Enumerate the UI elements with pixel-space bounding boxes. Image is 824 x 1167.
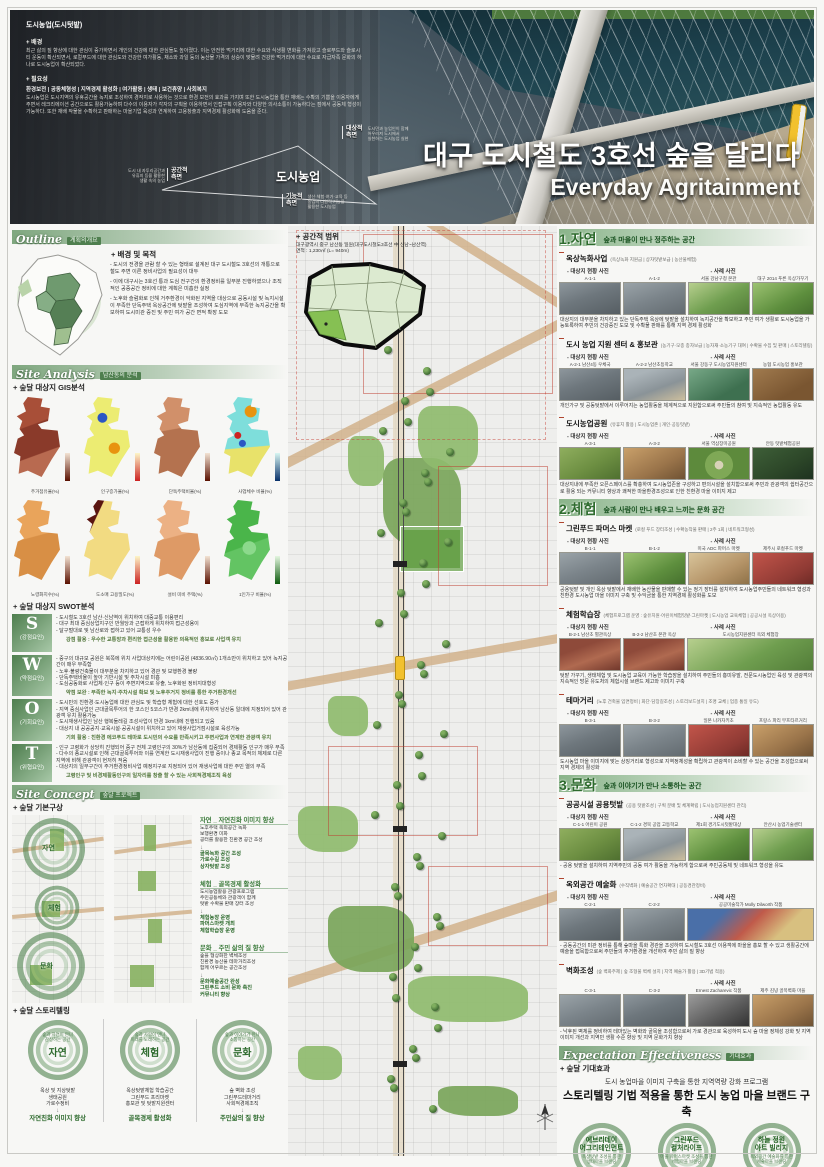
tree-icon xyxy=(402,508,410,516)
tree-icon xyxy=(371,811,379,819)
goal-item: - 노후화 슬럼화로 인해 거주환경이 악화된 지역을 대상으로 공동시설 및 … xyxy=(110,296,286,316)
need-keywords: 환경보전 | 공동체형성 | 지역경제 활성화 | 여가활동 | 생태 | 보건… xyxy=(26,85,362,93)
annotation-rect xyxy=(438,466,548,586)
swot-strength: S(강점요인) - 도시철도 3호선 남산·신남역이 위치하여 대중교통 이용편… xyxy=(12,614,288,652)
storytelling-row: 숲과 자연이 만나 감상하는 공간자연 옥상 및 지상텃밭 생태공원 가로수정비… xyxy=(12,1019,288,1122)
site-photo xyxy=(559,828,621,861)
case-photo-label: - 사례 사진 xyxy=(687,267,815,275)
tree-icon xyxy=(377,529,385,537)
tree-icon xyxy=(431,1003,439,1011)
outline-body: + 배경 및 목적 - 도시의 전경을 관람 할 수 있는 형태로 설계된 대구… xyxy=(12,247,288,363)
tree-icon xyxy=(391,883,399,891)
case-photo xyxy=(688,828,750,861)
concept-map-strip-1: 자연 체험 문화 xyxy=(12,815,104,1003)
concept-item-nature: 자연 _ 자연친화 이미지 향상 노후주택 옥외공간 녹화 보행환경 미화 공터… xyxy=(200,815,288,870)
expectation-title: + 숲달 기대효과 xyxy=(560,1063,814,1074)
tree-icon xyxy=(395,691,403,699)
case-photo xyxy=(687,638,814,671)
site-concept-section-header: Site Concept숲달 프로젝트 xyxy=(12,785,288,799)
tree-icon xyxy=(426,388,434,396)
tree-icon xyxy=(438,832,446,840)
concept-item-experience: 체험 _ 골목경제 활성화 도시농업활용 관광프로그램 주민공동체와 관광객이 … xyxy=(200,879,288,934)
poster: 도시농업(도시텃밭) + 배경 최근 삶의 질 향상에 대한 관심이 증가하면서… xyxy=(0,0,824,1167)
outline-section-header: Outline계획의개요 xyxy=(12,230,288,244)
tree-icon xyxy=(398,700,406,708)
tree-icon xyxy=(409,1045,417,1053)
goal-item: - 도시의 전경을 관람 할 수 있는 형태로 설계된 대구 도시철도 3호선의… xyxy=(110,262,286,275)
tree-icon xyxy=(393,781,401,789)
tree-icon xyxy=(399,499,407,507)
story-culture: 숲과 이야기가 만나 소통하는 공간문화 숲 벽화 조성 그린푸드테마거리 사회… xyxy=(196,1019,288,1122)
expectation-circles: 에브리데이 어그리테인먼트옥상텃밭 조성을 통한 생태마을 브랜딩 그린푸드 컬… xyxy=(559,1122,814,1167)
tree-icon xyxy=(392,994,400,1002)
urban-agriculture-triangle-diagram: 도시농업 도시 내 자투리공간과 유휴지 등을 활용한 생활 속의 농업 공간적… xyxy=(128,126,468,222)
tree-icon xyxy=(419,559,427,567)
annotation-rect xyxy=(328,746,478,836)
site-photo xyxy=(559,994,621,1027)
triangle-target-aspect: 대상적 측면 도시민과 농업인이 함께 어우러져 도시에서 실천하는 도시농업 … xyxy=(340,126,408,142)
site-photo xyxy=(623,368,685,401)
need-text: 도시농업은 도시지역의 유휴공간을 녹지로 조성하여 경작지로 사용하는 것으로… xyxy=(26,95,362,115)
case-photo xyxy=(688,552,750,585)
tree-icon xyxy=(412,1054,420,1062)
sub-theme-street: 테마거리(노후 건축물 입면정비 | 화단·담장길조성 | 스토리보드설치 | … xyxy=(559,690,814,772)
tree-icon xyxy=(413,853,421,861)
case-photo xyxy=(752,994,814,1027)
case-photo xyxy=(687,908,814,941)
site-boundary-map xyxy=(292,256,444,368)
tree-icon xyxy=(429,1105,437,1113)
section-header-experience: 2.체험숲과 사람이 만나 배우고 느끼는 문화 공간 xyxy=(559,499,814,516)
swot-opportunity: O(기회요인) - 도시민의 친환경·도시농업에 대한 관심도 및 학습형 체험… xyxy=(12,699,288,740)
hero-photo: 도시농업(도시텃밭) + 배경 최근 삶의 질 향상에 대한 관심이 증가하면서… xyxy=(10,10,814,224)
gis-map: 설비 미비 주택(%) xyxy=(152,498,218,598)
site-photo xyxy=(623,828,685,861)
concept-map-label: 체험 xyxy=(48,903,61,913)
storytelling-title: + 숲달 스토리텔링 xyxy=(13,1005,288,1016)
brand-everyday-agritainment: 에브리데이 어그리테인먼트옥상텃밭 조성을 통한 생태마을 브랜딩 xyxy=(559,1122,644,1167)
swot-title: + 숲달 대상지 SWOT분석 xyxy=(13,601,288,612)
sub-public-garden: 공공시설 공용텃밭(공용 텃밭조성 | 구획 분배 및 체계확립 | 도시농업지… xyxy=(559,794,814,869)
tree-icon xyxy=(423,367,431,375)
triangle-center-label: 도시농업 xyxy=(276,168,320,185)
tree-icon xyxy=(415,751,423,759)
scope-block: + 공간적 범위 대구광역시 중구 남산동 일원(대구도시철도3호선 中 신남~… xyxy=(296,231,466,255)
concept-basic-title: + 숲달 기본구상 xyxy=(13,802,288,813)
site-photo xyxy=(623,908,685,941)
case-photo xyxy=(752,724,814,757)
story-nature: 숲과 자연이 만나 감상하는 공간자연 옥상 및 지상텃밭 생태공원 가로수정비… xyxy=(12,1019,103,1122)
need-label: + 필요성 xyxy=(26,74,362,83)
goal-title: + 배경 및 목적 xyxy=(111,249,286,260)
tree-icon xyxy=(387,1075,395,1083)
swot-weakness: W(약점요인) - 중구의 대규모 공원은 북쪽에 위치 사업대상지에는 어린이… xyxy=(12,655,288,696)
tree-icon xyxy=(400,610,408,618)
concept-map-label: 문화 xyxy=(40,961,53,971)
brand-sky-garden-art-village: 하늘 정원 아트 빌리지옥외공간 예술화를 통한 예술마을 브랜딩 xyxy=(729,1122,814,1167)
site-photo xyxy=(623,724,685,757)
site-photo xyxy=(623,282,685,315)
brand-greenfood-culturelife: 그린푸드 컬처라이프마을 파머스마켓 조성을 통한 체험마을 브랜딩 xyxy=(644,1122,729,1167)
tree-icon xyxy=(418,772,426,780)
section-header-nature: 1.자연숲과 마을이 만나 정주하는 공간 xyxy=(559,229,814,246)
tree-icon xyxy=(433,913,441,921)
background-label: + 배경 xyxy=(26,37,362,46)
case-photo xyxy=(688,447,750,480)
left-column: Outline계획의개요 + 배경 및 목적 - 도시의 전경을 관람 할 수 … xyxy=(12,228,288,1122)
site-photo xyxy=(623,552,685,585)
tree-icon xyxy=(404,418,412,426)
tree-icon xyxy=(396,802,404,810)
gis-map: 주거점유율(%) xyxy=(12,395,78,495)
tree-icon xyxy=(401,397,409,405)
sub-outdoor-art: 옥외공간 예술화(수직벽화 | 예술공간 연차확대 | 공동경관정비) - 대상… xyxy=(559,874,814,956)
station-marker xyxy=(393,1061,407,1067)
tree-icon xyxy=(417,661,425,669)
expectation-line1: 도시 농업마을 이미지 구축을 통한 지역역량 강화 프로그램 xyxy=(559,1076,814,1086)
site-photo xyxy=(559,908,621,941)
site-analysis-section-header: Site Analysis남산동의 분석 xyxy=(12,365,288,379)
tree-icon xyxy=(440,730,448,738)
tree-icon xyxy=(414,964,422,972)
story-experience: 숲과 사람이 만나 미래를 노래하는 공간체험 옥상텃밭체험 학습공간 그린푸드… xyxy=(103,1019,195,1122)
tree-icon xyxy=(444,538,452,546)
gis-map: 인구증가율(%) xyxy=(82,395,148,495)
gis-title: + 숲달 대상지 GIS분석 xyxy=(13,382,288,393)
sub-agri-support-center: 도시 농업 지원 센터 & 홍보관(농기구·모종 종자보급 | 농자재·소농기구… xyxy=(559,334,814,409)
case-photo xyxy=(752,447,814,480)
annotation-rect xyxy=(428,866,548,946)
site-photo xyxy=(623,447,685,480)
tree-icon xyxy=(379,427,387,435)
tree-icon xyxy=(446,448,454,456)
sub-mural-street: 벽화조성(숲 벽화주제 | 숲 조형물 벽체 설치 | 지역 예술가 활용 | … xyxy=(559,960,814,1042)
tree-icon xyxy=(442,640,450,648)
overlay-title: 도시농업(도시텃밭) xyxy=(26,20,362,30)
gis-map-row-1: 주거점유율(%) 인구증가율(%) 단독주택비율(%) 사업체수 비율(%) xyxy=(12,395,288,495)
case-photo xyxy=(688,368,750,401)
site-photo xyxy=(623,638,685,671)
site-photo xyxy=(559,638,621,671)
tree-icon xyxy=(422,580,430,588)
site-photo xyxy=(559,368,621,401)
scope-title: + 공간적 범위 xyxy=(296,231,466,242)
site-photo-label: - 대상지 현황 사진 xyxy=(559,267,687,275)
poster-subtitle: Everyday Agritainment xyxy=(423,174,800,201)
concept-diagram-area: 자연 체험 문화 자연 _ 자연친화 이미지 향상 노후주택 옥외공간 녹화 보… xyxy=(12,815,288,1003)
tree-icon xyxy=(373,721,381,729)
tree-icon xyxy=(389,973,397,981)
case-photo xyxy=(752,368,814,401)
gis-map: 도소매 고용밀도(%) xyxy=(82,498,148,598)
gis-map: 사업체수 비율(%) xyxy=(222,395,288,495)
gis-map: 단독주택비율(%) xyxy=(152,395,218,495)
masterplan-map: + 공간적 범위 대구광역시 중구 남산동 일원(대구도시철도3호선 中 신남~… xyxy=(288,226,557,1156)
case-photo xyxy=(688,282,750,315)
expectation-section-header: Expectation Effectiveness기대효과 xyxy=(559,1046,814,1060)
tree-icon xyxy=(434,1024,442,1032)
scope-area: 면적 : 1,230㎡ (L= 940m) xyxy=(296,249,466,255)
background-text: 최근 삶의 질 향상에 대한 관심이 증가하면서 개인의 건강에 대한 관심들도… xyxy=(26,48,362,68)
tree-icon xyxy=(416,862,424,870)
goal-block: + 배경 및 목적 - 도시의 전경을 관람 할 수 있는 형태로 설계된 대구… xyxy=(110,247,286,320)
tree-icon xyxy=(375,619,383,627)
sub-learning-garden: 체험학습장(체험프로그램 운영 : 숲유치원·어린이체험텃밭·그린마켓 | 도시… xyxy=(559,604,814,686)
monorail-on-map xyxy=(395,656,405,680)
triangle-space-aspect: 도시 내 자투리공간과 유휴지 등을 활용한 생활 속의 농업 공간적 측면 xyxy=(128,168,193,184)
case-photo xyxy=(752,552,814,585)
sub-farmers-market: 그린푸드 파머스 마켓(로컬 푸드 장터조성 | 수확농작물 판매 | 2주 1… xyxy=(559,518,814,600)
expectation-line2: 스토리텔링 기법 적용을 통한 도시 농업 마을 브랜드 구축 xyxy=(559,1087,814,1119)
tree-icon xyxy=(394,892,402,900)
north-arrow xyxy=(534,1102,556,1132)
tree-icon xyxy=(397,589,405,597)
tree-icon xyxy=(390,1084,398,1092)
site-photo xyxy=(559,447,621,480)
swot-threat: T(위협요인) - 인구 고령화가 상당히 진행되어 중구 전체 고령인구의 3… xyxy=(12,744,288,782)
poster-title-block: 대구 도시철도 3호선 숲을 달리다 Everyday Agritainment xyxy=(423,134,800,201)
station-marker xyxy=(393,561,407,567)
concept-map-label: 자연 xyxy=(42,843,55,853)
section-header-culture: 3.문화숲과 이야기가 만나 소통하는 공간 xyxy=(559,775,814,792)
right-column: 1.자연숲과 마을이 만나 정주하는 공간 옥상녹화사업(옥상녹화 지원금 | … xyxy=(559,228,814,1167)
sub-rooftop-greening: 옥상녹화사업(옥상녹화 지원금 | 상자텃밭보급 | 농산물체험) - 대상지 … xyxy=(559,248,814,330)
concept-map-strip-2 xyxy=(114,815,192,1003)
tree-icon xyxy=(411,943,419,951)
gis-map: 1인가구 비율(%) xyxy=(222,498,288,598)
sub-urban-agri-park: 도시농업공원(유휴지 활용 | 도시농업존 | 개인·공동텃밭) - 대상지 현… xyxy=(559,413,814,495)
goal-item: - 이에 대구시는 3호선 통과 도심 전구간의 환경정비를 일부분 진행하였으… xyxy=(110,279,286,292)
daegu-districts-map xyxy=(12,247,106,361)
site-photo xyxy=(559,552,621,585)
tree-icon xyxy=(424,478,432,486)
site-photo xyxy=(559,724,621,757)
hero-overlay-text: 도시농업(도시텃밭) + 배경 최근 삶의 질 향상에 대한 관심이 증가하면서… xyxy=(26,20,362,116)
tree-icon xyxy=(436,922,444,930)
site-photo xyxy=(623,994,685,1027)
triangle-function-aspect: 기능적 측면 생산·체험·여가·교육 등 농업의 다원적 기능을 활용한 도시농… xyxy=(280,194,348,210)
concept-item-culture: 문화 _ 주민 삶의 질 향상 숲을 형상화한 벽체조성 친환경 농산물 테마거… xyxy=(200,943,288,998)
poster-title: 대구 도시철도 3호선 숲을 달리다 xyxy=(423,134,800,173)
gis-map-row-2: 노령화지수(%) 도소매 고용밀도(%) 설비 미비 주택(%) 1인가구 비율… xyxy=(12,498,288,598)
case-photo xyxy=(688,994,750,1027)
gis-map: 노령화지수(%) xyxy=(12,498,78,598)
site-photo xyxy=(559,282,621,315)
tree-icon xyxy=(421,469,429,477)
case-photo xyxy=(752,282,814,315)
case-photo xyxy=(688,724,750,757)
case-photo xyxy=(752,828,814,861)
tree-icon xyxy=(420,670,428,678)
